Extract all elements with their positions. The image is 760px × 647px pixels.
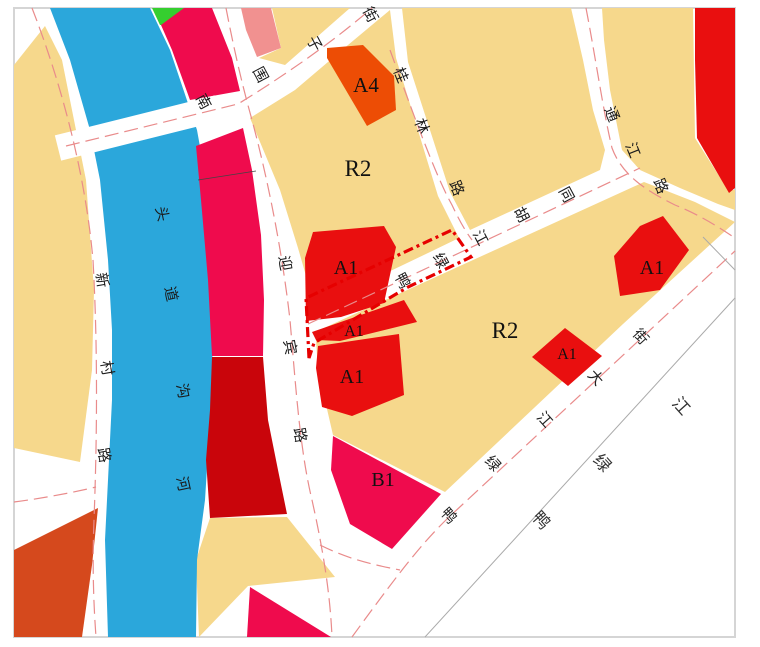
xincun-label-char: 路 [94, 446, 113, 464]
zone-label-a1-east: A1 [640, 257, 664, 279]
xincun-label-char: 新 [92, 271, 111, 289]
zone-label-b1: B1 [371, 469, 394, 491]
zone-label-a1-south: A1 [340, 366, 364, 388]
yingbin-label-char: 迎 [275, 254, 294, 272]
zone-label-a1-diamond: A1 [557, 346, 577, 363]
yingbin-label-char: 宾 [280, 338, 299, 356]
zone-label-a1-main: A1 [334, 257, 358, 279]
yingbin-label-char: 路 [290, 426, 309, 444]
zoning-map-canvas: 新 村 路 迎 宾 路 南 围 子 街 桂 林 路 通 江 路 鸭 绿 江 胡 … [0, 0, 760, 647]
zone-label-r2-south: R2 [492, 318, 519, 343]
zone-label-r2-north: R2 [345, 156, 372, 181]
zone-label-a4: A4 [353, 73, 379, 97]
xincun-label-char: 村 [97, 359, 116, 377]
zone-label-a1-mid: A1 [344, 323, 364, 340]
zoning-map: 新 村 路 迎 宾 路 南 围 子 街 桂 林 路 通 江 路 鸭 绿 江 胡 … [0, 0, 760, 647]
